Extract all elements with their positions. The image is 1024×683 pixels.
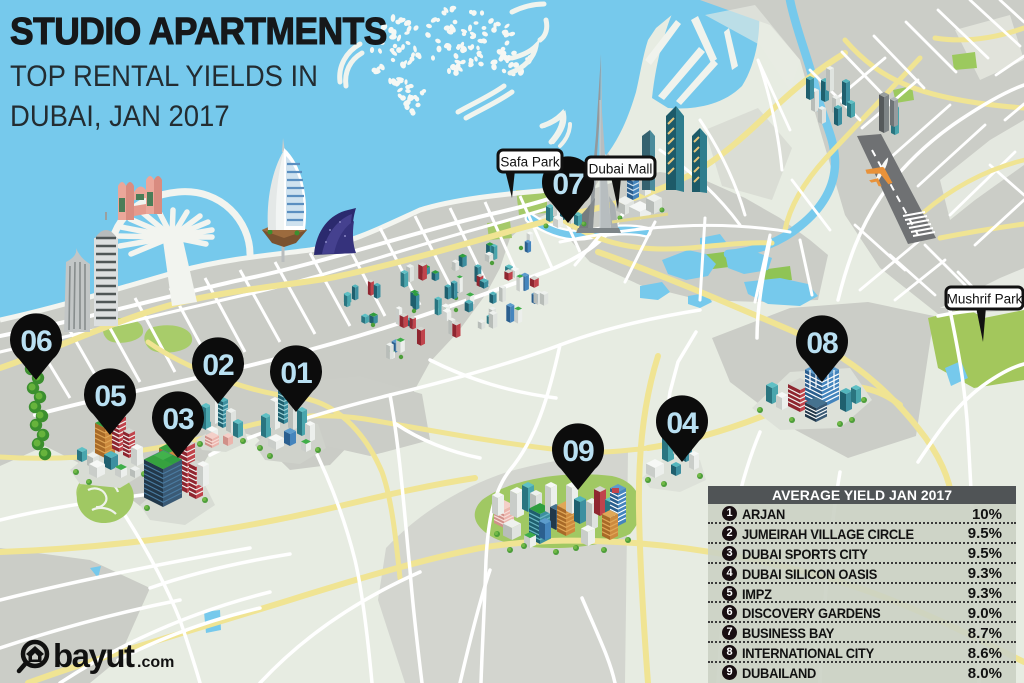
svg-text:01: 01 (280, 357, 312, 390)
svg-text:03: 03 (162, 403, 194, 436)
svg-text:04: 04 (666, 407, 699, 440)
svg-text:bayut: bayut (53, 637, 135, 674)
svg-text:06: 06 (20, 325, 52, 358)
svg-text:Mushrif Park: Mushrif Park (947, 292, 1023, 307)
svg-text:Safa Park: Safa Park (500, 155, 560, 170)
svg-text:Dubai Mall: Dubai Mall (589, 162, 653, 177)
svg-text:.com: .com (137, 654, 174, 671)
svg-text:02: 02 (202, 349, 234, 382)
svg-text:08: 08 (806, 327, 838, 360)
svg-text:09: 09 (562, 435, 594, 468)
svg-text:05: 05 (94, 380, 126, 413)
